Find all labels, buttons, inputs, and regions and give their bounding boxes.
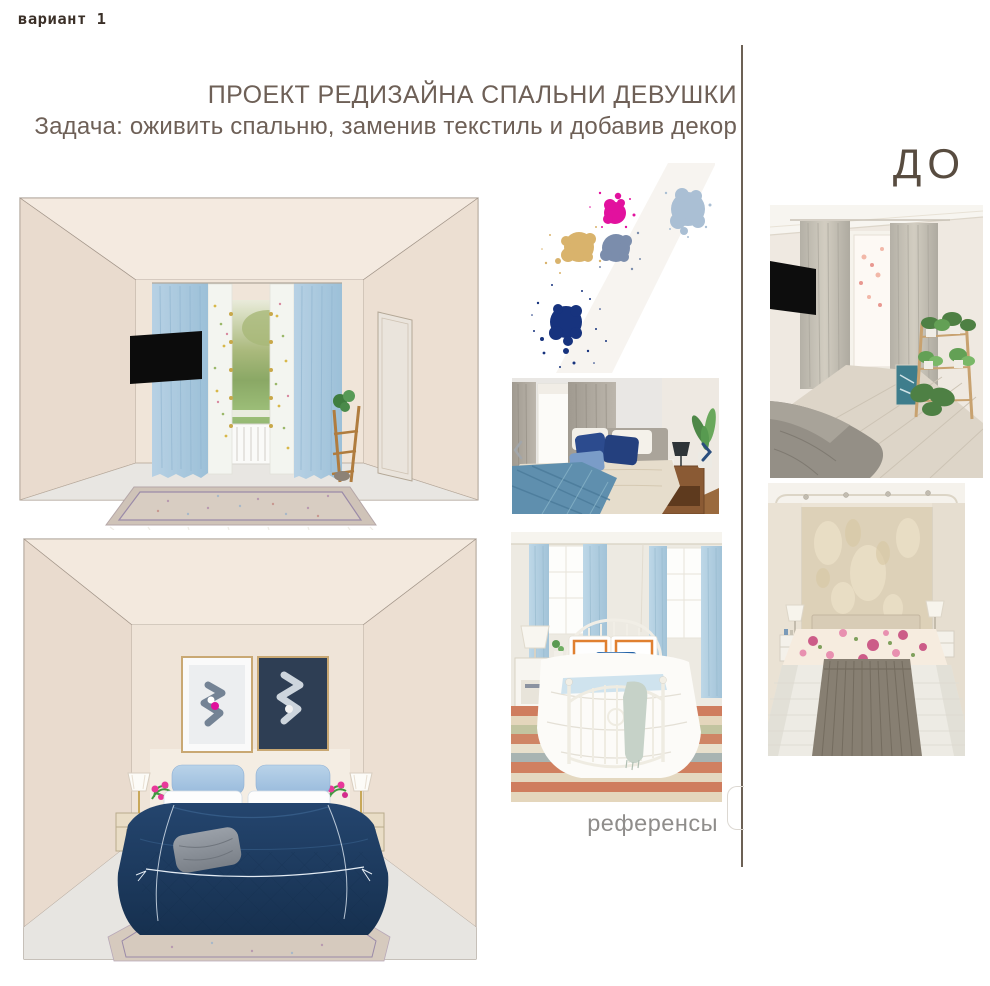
- variant-label: вариант 1: [18, 10, 107, 28]
- tv: [130, 331, 202, 384]
- artwork-right: [258, 657, 328, 750]
- rounded-corner-artifact: [727, 786, 744, 830]
- before-photo-floral-bed: [768, 483, 965, 756]
- oriental-rug: [106, 487, 376, 530]
- render-new-bedroom-bed-wall: [22, 537, 478, 963]
- before-label: ДО: [893, 140, 966, 188]
- reference-photo-white-iron-bed: [511, 532, 722, 802]
- before-photo-curtains-tv: [770, 205, 983, 478]
- window: [538, 384, 572, 476]
- door: [378, 312, 412, 481]
- color-palette-splatter: [530, 163, 715, 373]
- header: ПРОЕКТ РЕДИЗАЙНА СПАЛЬНИ ДЕВУШКИ Задача:…: [0, 80, 737, 142]
- references-label: референсы: [511, 810, 718, 837]
- navy-bedspread: [118, 803, 389, 935]
- headboard: [812, 615, 920, 631]
- white-duvet: [537, 653, 701, 778]
- moodboard-page: вариант 1 ПРОЕКТ РЕДИЗАЙНА СПАЛЬНИ ДЕВУШ…: [0, 0, 990, 986]
- palette-blob-magenta: [589, 192, 635, 228]
- render-new-bedroom-window-wall: [18, 196, 480, 530]
- vertical-divider: [741, 45, 743, 867]
- ceiling: [511, 532, 722, 544]
- reference-photo-blue-pillows: [512, 378, 719, 514]
- artwork-left: [182, 657, 252, 752]
- gray-runner: [812, 659, 922, 756]
- page-subtitle: Задача: оживить спальню, заменив текстил…: [0, 113, 737, 142]
- tv: [770, 261, 816, 315]
- page-title: ПРОЕКТ РЕДИЗАЙНА СПАЛЬНИ ДЕВУШКИ: [0, 80, 737, 110]
- ceiling: [768, 483, 965, 503]
- palette-blob-tan: [541, 226, 601, 274]
